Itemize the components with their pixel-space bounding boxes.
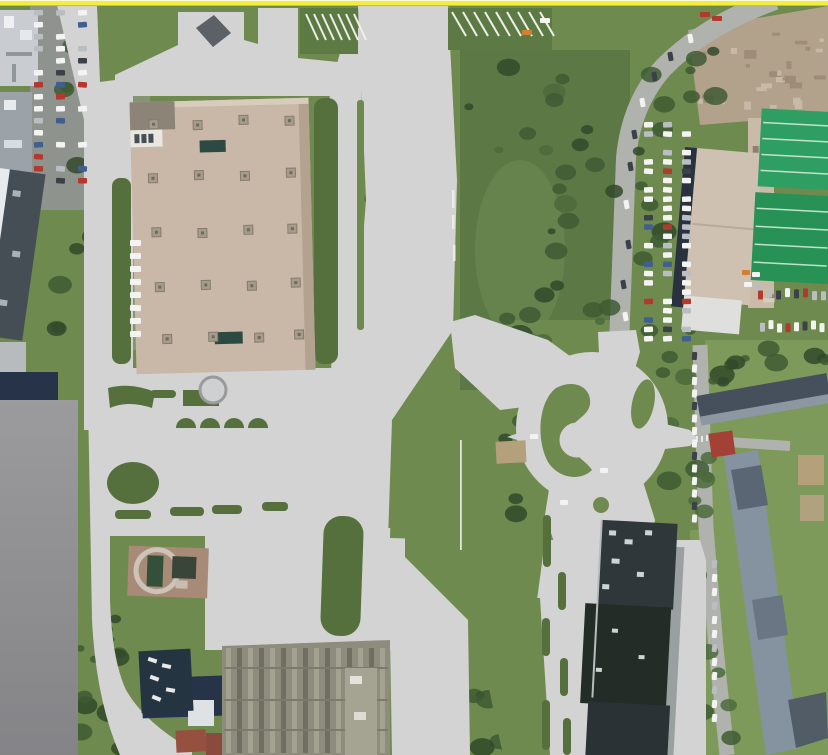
rotunda — [200, 377, 226, 403]
tree-blob — [585, 157, 605, 172]
car — [644, 336, 653, 342]
car — [820, 323, 825, 332]
car — [692, 514, 698, 522]
car — [56, 118, 65, 124]
marina-pond — [138, 649, 193, 714]
car — [682, 243, 691, 249]
dirt-dot — [783, 77, 789, 80]
car — [692, 464, 698, 472]
car — [34, 118, 43, 124]
car — [692, 377, 698, 385]
roof-vent-dot — [298, 333, 301, 336]
roof-vent-dot — [250, 284, 253, 287]
playground-sand-2 — [800, 495, 824, 521]
tree-blob — [683, 90, 700, 103]
car — [644, 159, 653, 165]
car — [682, 289, 691, 295]
car — [663, 271, 672, 277]
dirt-dot — [790, 82, 802, 88]
tree-blob — [633, 147, 645, 156]
car — [34, 46, 43, 52]
tree-blob — [707, 47, 719, 56]
car — [744, 282, 752, 287]
car — [767, 289, 772, 298]
car — [130, 318, 141, 324]
car — [682, 159, 691, 165]
tree-blob — [653, 96, 675, 112]
car — [644, 168, 653, 174]
garage-yard — [222, 640, 390, 755]
red-roof-building — [708, 430, 735, 457]
island-teardrop — [107, 462, 159, 504]
car — [78, 58, 87, 64]
car — [34, 22, 43, 28]
car — [682, 168, 691, 174]
map-canvas[interactable] — [0, 0, 828, 755]
car — [663, 224, 672, 230]
car — [78, 10, 87, 16]
car — [663, 308, 672, 314]
tree-blob — [555, 165, 576, 181]
car — [34, 34, 43, 40]
car — [600, 468, 608, 473]
car — [692, 402, 698, 410]
car — [682, 280, 691, 286]
car — [644, 196, 653, 202]
tree-blob — [545, 93, 564, 107]
tree-blob — [558, 213, 580, 229]
tree-blob — [657, 471, 682, 490]
dirt-dot — [770, 105, 777, 109]
car — [130, 292, 141, 298]
car — [758, 291, 763, 300]
car — [78, 82, 87, 88]
car — [682, 233, 691, 239]
car — [692, 502, 698, 510]
dirt-dot — [795, 41, 807, 45]
south-arm-island — [593, 497, 609, 513]
tree-blob — [548, 228, 556, 234]
car — [712, 686, 718, 694]
car — [682, 215, 691, 221]
car — [130, 266, 141, 272]
tree-blob — [758, 341, 780, 357]
car — [34, 154, 43, 160]
overlay-lower-apron — [205, 528, 405, 650]
car — [821, 291, 826, 300]
sand-playground — [495, 440, 526, 464]
apartment-block-2-dark-section2 — [752, 595, 788, 640]
car — [712, 602, 718, 610]
island-east-sliver — [357, 100, 364, 330]
tree-blob — [47, 321, 67, 336]
car — [34, 94, 43, 100]
tree-blob — [69, 243, 84, 255]
car — [712, 714, 718, 722]
car — [644, 122, 653, 128]
car — [34, 82, 43, 88]
roof-vent-dot — [242, 118, 245, 121]
mall-building — [129, 98, 315, 375]
car — [663, 261, 672, 267]
car — [682, 308, 691, 314]
car — [78, 142, 87, 148]
roof-vent-dot — [197, 174, 200, 177]
car — [663, 159, 672, 165]
small-building — [0, 342, 26, 374]
car — [742, 270, 750, 275]
car — [812, 291, 817, 300]
tree-blob — [505, 505, 527, 522]
car — [803, 288, 808, 297]
dirt-dot — [777, 71, 781, 76]
roof-vent-dot — [166, 337, 169, 340]
car — [663, 150, 672, 156]
car — [78, 46, 87, 52]
tree-blob — [519, 307, 541, 323]
car — [712, 658, 718, 666]
car — [530, 434, 538, 439]
roof-vent-dot — [291, 227, 294, 230]
car — [644, 271, 653, 277]
car — [78, 22, 87, 28]
car — [644, 261, 653, 267]
car — [754, 284, 762, 289]
car — [682, 271, 691, 277]
roof-vent-dot — [289, 171, 292, 174]
green-warehouses — [751, 108, 828, 284]
tree-blob — [595, 317, 605, 324]
car — [692, 364, 698, 372]
roof-vent-dot — [201, 231, 204, 234]
car — [663, 299, 672, 305]
island-nw — [97, 5, 115, 82]
tree-blob — [605, 185, 623, 198]
car — [663, 336, 672, 342]
car — [56, 94, 65, 100]
car — [712, 630, 718, 638]
car — [56, 178, 65, 184]
yellow-line-edge — [0, 5, 828, 6]
tree-blob — [534, 287, 554, 302]
car — [56, 58, 65, 64]
car — [78, 70, 87, 76]
car — [682, 150, 691, 156]
tree-blob — [464, 103, 473, 110]
tree-blob — [508, 493, 523, 504]
yellow-boundary-line — [0, 1, 828, 5]
car — [522, 30, 532, 35]
dirt-dot — [814, 75, 826, 79]
car — [692, 452, 698, 460]
red-house-1 — [175, 729, 206, 753]
car — [682, 178, 691, 184]
car — [663, 168, 672, 174]
industrial-building-left — [0, 372, 58, 402]
car — [692, 439, 698, 447]
tree-blob — [685, 67, 695, 75]
car — [682, 131, 691, 137]
car — [682, 336, 691, 342]
car — [644, 326, 653, 332]
island-east-strip — [314, 98, 338, 364]
car — [56, 142, 65, 148]
tree-blob — [708, 377, 718, 385]
car — [34, 10, 43, 16]
car — [692, 427, 698, 435]
car — [560, 500, 568, 505]
tree-blob — [720, 699, 736, 711]
dirt-dot — [731, 48, 737, 54]
dirt-dot — [772, 33, 780, 36]
car — [752, 272, 760, 277]
car — [712, 560, 718, 568]
car — [663, 317, 672, 323]
car — [777, 324, 782, 333]
car — [794, 322, 799, 331]
car — [34, 166, 43, 172]
car — [663, 215, 672, 221]
roof-vent-dot — [243, 174, 246, 177]
dirt-dot — [819, 38, 824, 42]
car — [712, 588, 718, 596]
car — [540, 18, 550, 23]
island-west-strip — [112, 178, 131, 364]
car — [78, 178, 87, 184]
car — [712, 644, 718, 652]
car — [692, 477, 698, 485]
tree-blob — [641, 67, 662, 83]
car — [811, 321, 816, 330]
car — [644, 317, 653, 323]
car — [682, 224, 691, 230]
roof-vent-dot — [258, 336, 261, 339]
tree-blob — [581, 125, 593, 134]
car — [682, 299, 691, 305]
car — [644, 243, 653, 249]
car — [130, 331, 141, 337]
dirt-dot — [805, 47, 810, 51]
dirt-dot — [744, 50, 756, 59]
car — [130, 279, 141, 285]
car — [712, 616, 718, 624]
car — [663, 326, 672, 332]
tree-blob — [703, 87, 727, 105]
tree-blob — [497, 59, 520, 76]
unloaded-tile-panel — [0, 400, 78, 755]
dirt-dot — [761, 83, 772, 88]
car — [692, 489, 698, 497]
roof-vent-dot — [212, 335, 215, 338]
tree-blob — [539, 145, 553, 155]
tree-blob — [555, 74, 569, 85]
tree-blob — [550, 280, 564, 290]
roof-vent-dot — [155, 231, 158, 234]
car — [56, 46, 65, 52]
car — [34, 106, 43, 112]
car — [712, 574, 718, 582]
roof-vent-dot — [158, 286, 161, 289]
tree-blob — [695, 505, 713, 519]
car — [682, 327, 691, 333]
car — [644, 280, 653, 286]
tree-blob — [726, 355, 745, 369]
satellite-map — [0, 0, 828, 755]
tree-blob — [552, 183, 566, 194]
car — [682, 261, 691, 267]
tree-blob — [572, 138, 589, 151]
car — [712, 700, 718, 708]
restaurant-plot — [127, 546, 209, 599]
car — [130, 253, 141, 259]
roof-vent-dot — [247, 228, 250, 231]
car — [776, 290, 781, 299]
car — [644, 187, 653, 193]
car — [56, 70, 65, 76]
tree-blob — [76, 691, 92, 703]
car — [130, 240, 141, 246]
tree-blob — [721, 731, 740, 746]
roof-vent-dot — [151, 177, 154, 180]
car — [700, 12, 710, 17]
car — [712, 16, 722, 21]
car — [663, 187, 672, 193]
dirt-dot — [746, 64, 750, 67]
car — [760, 323, 765, 332]
car — [56, 10, 65, 16]
car — [56, 34, 65, 40]
car — [663, 196, 672, 202]
car — [56, 82, 65, 88]
car — [78, 106, 87, 112]
car — [644, 299, 653, 305]
car — [692, 352, 698, 360]
tree-blob — [686, 51, 707, 67]
tree-blob — [110, 615, 122, 624]
dirt-dot — [786, 61, 791, 69]
car — [56, 106, 65, 112]
car — [712, 672, 718, 680]
tree-blob — [48, 276, 72, 294]
tree-blob — [545, 243, 568, 260]
roof-vent-dot — [288, 119, 291, 122]
tree-blob — [495, 146, 504, 153]
car — [794, 289, 799, 298]
tree-blob — [554, 195, 577, 212]
dirt-dot — [795, 100, 803, 109]
car — [663, 243, 672, 249]
roof-vent-dot — [294, 281, 297, 284]
car — [663, 178, 672, 184]
car — [692, 414, 698, 422]
median-central — [390, 415, 470, 540]
dirt-dot — [744, 102, 751, 110]
tree-blob — [583, 302, 604, 317]
car — [663, 122, 672, 128]
car — [34, 130, 43, 136]
playground-sand — [798, 455, 824, 485]
roof-vent-dot — [204, 283, 207, 286]
car — [34, 142, 43, 148]
tree-blob — [519, 127, 536, 140]
tree-blob — [499, 313, 515, 325]
car — [663, 252, 672, 258]
car — [803, 322, 808, 331]
tree-blob — [656, 367, 670, 378]
roof-vent-dot — [196, 124, 199, 127]
tree-blob — [662, 351, 678, 363]
residential-street-h — [695, 440, 790, 446]
car — [692, 389, 698, 397]
car — [130, 305, 141, 311]
dirt-dot — [816, 49, 823, 53]
car — [769, 320, 774, 329]
scrap-dot — [753, 146, 759, 153]
car — [682, 196, 691, 202]
car — [786, 323, 791, 332]
roof-vent-dot — [152, 123, 155, 126]
car — [56, 166, 65, 172]
car — [682, 205, 691, 211]
car — [34, 70, 43, 76]
car — [663, 234, 672, 240]
car — [78, 166, 87, 172]
island-long — [320, 515, 364, 636]
scrap-dot — [763, 298, 774, 302]
overlay-north-arm — [598, 330, 640, 374]
car — [644, 131, 653, 137]
car — [663, 205, 672, 211]
car — [663, 131, 672, 137]
car — [644, 215, 653, 221]
car — [644, 224, 653, 230]
car — [785, 288, 790, 297]
